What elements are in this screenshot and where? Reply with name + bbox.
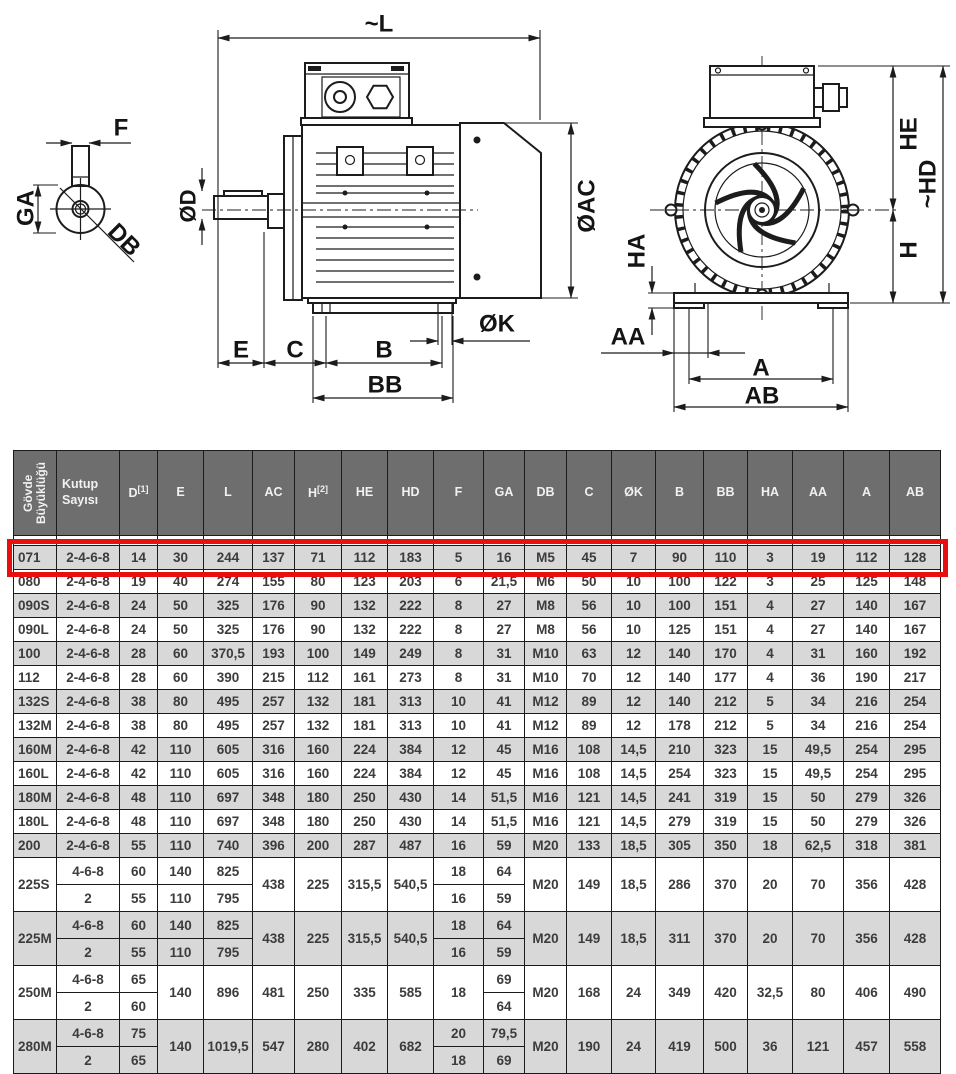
table-cell: 558 <box>890 1020 941 1074</box>
spacer-cell <box>14 536 57 546</box>
table-cell: 112 <box>295 666 342 690</box>
table-cell: 90 <box>295 618 342 642</box>
table-cell: 110 <box>704 546 748 570</box>
table-cell: 100 <box>656 570 704 594</box>
table-cell: 55 <box>120 885 158 912</box>
spacer-cell <box>253 536 295 546</box>
table-cell: 4 <box>748 618 793 642</box>
table-cell: 5 <box>748 690 793 714</box>
table-cell: 605 <box>204 762 253 786</box>
dim-label-ok: ØK <box>479 311 516 338</box>
table-cell: 51,5 <box>484 810 525 834</box>
table-cell: 326 <box>890 786 941 810</box>
spacer-cell <box>844 536 890 546</box>
table-cell: 279 <box>656 810 704 834</box>
col-header-label: GA <box>495 485 514 499</box>
table-cell: 21,5 <box>484 570 525 594</box>
table-cell: 896 <box>204 966 253 1020</box>
table-row: 132S2-4-6-838804952571321813131041M12891… <box>14 690 941 714</box>
table-cell: 132M <box>14 714 57 738</box>
table-cell: 215 <box>253 666 295 690</box>
table-cell: 110 <box>158 762 204 786</box>
table-cell: 122 <box>704 570 748 594</box>
table-cell: 370,5 <box>204 642 253 666</box>
table-cell: 132 <box>295 714 342 738</box>
technical-drawing: F GA DB ~L <box>0 0 956 448</box>
table-row: 2002-4-6-8551107403962002874871659M20133… <box>14 834 941 858</box>
table-cell: 241 <box>656 786 704 810</box>
highlighted-row: 0712-4-6-8143024413771112183516M54579011… <box>14 546 941 570</box>
table-cell: 280M <box>14 1020 57 1074</box>
col-header: HD <box>388 451 434 536</box>
dimension-table-wrapper: Gövde BüyüklüğüKutup SayısıD[1]ELACH[2]H… <box>13 450 956 1074</box>
table-cell: 222 <box>388 618 434 642</box>
table-cell: 090L <box>14 618 57 642</box>
table-cell: 90 <box>656 546 704 570</box>
table-row: 160L2-4-6-8421106053161602243841245M1610… <box>14 762 941 786</box>
col-header-label: D <box>128 486 137 500</box>
dim-label-oac: ØAC <box>574 179 601 232</box>
table-cell: 10 <box>434 714 484 738</box>
table-cell: 349 <box>656 966 704 1020</box>
spacer-cell <box>57 536 120 546</box>
table-cell: 8 <box>434 666 484 690</box>
footnote-marker: [2] <box>317 484 328 494</box>
table-cell: 38 <box>120 714 158 738</box>
col-header-label: AA <box>809 485 827 499</box>
table-cell: 18 <box>434 912 484 939</box>
table-cell: 250M <box>14 966 57 1020</box>
table-cell: 112 <box>14 666 57 690</box>
table-cell: 224 <box>342 738 388 762</box>
table-cell: 326 <box>890 810 941 834</box>
table-cell: 305 <box>656 834 704 858</box>
table-cell: 178 <box>656 714 704 738</box>
table-cell: 279 <box>844 786 890 810</box>
table-cell: 7 <box>612 546 656 570</box>
table-cell: 110 <box>158 786 204 810</box>
table-cell: 8 <box>434 618 484 642</box>
table-cell: M8 <box>525 594 567 618</box>
table-cell: 325 <box>204 594 253 618</box>
table-cell: 244 <box>204 546 253 570</box>
table-cell: 8 <box>434 594 484 618</box>
col-header-label: C <box>584 485 593 499</box>
table-cell: 295 <box>890 762 941 786</box>
col-header: H[2] <box>295 451 342 536</box>
col-header-label: E <box>176 485 184 499</box>
table-cell: 45 <box>484 762 525 786</box>
table-cell: 16 <box>434 939 484 966</box>
dim-label-f: F <box>114 115 129 142</box>
table-cell: 257 <box>253 690 295 714</box>
table-cell: 176 <box>253 618 295 642</box>
table-cell: M12 <box>525 690 567 714</box>
col-header: A <box>844 451 890 536</box>
dim-label-b: B <box>375 337 392 364</box>
table-cell: 540,5 <box>388 858 434 912</box>
table-cell: 313 <box>388 690 434 714</box>
table-cell: 65 <box>120 1047 158 1074</box>
table-cell: 62,5 <box>793 834 844 858</box>
table-cell: 100 <box>656 594 704 618</box>
spacer-cell <box>612 536 656 546</box>
table-cell: 200 <box>14 834 57 858</box>
table-cell: 428 <box>890 912 941 966</box>
table-cell: M20 <box>525 1020 567 1074</box>
spacer-cell <box>342 536 388 546</box>
table-cell: 15 <box>748 786 793 810</box>
table-cell: 10 <box>612 618 656 642</box>
col-header-label: HA <box>761 485 779 499</box>
table-cell: 137 <box>253 546 295 570</box>
table-cell: 160 <box>844 642 890 666</box>
table-cell: 316 <box>253 738 295 762</box>
table-cell: 70 <box>793 858 844 912</box>
table-cell: 59 <box>484 939 525 966</box>
table-cell: 80 <box>793 966 844 1020</box>
table-cell: 60 <box>120 993 158 1020</box>
col-header-label: B <box>675 485 684 499</box>
table-cell: 34 <box>793 714 844 738</box>
table-cell: 438 <box>253 858 295 912</box>
table-cell: 319 <box>704 810 748 834</box>
table-cell: 390 <box>204 666 253 690</box>
table-cell: 36 <box>793 666 844 690</box>
table-cell: 315,5 <box>342 858 388 912</box>
table-cell: 1019,5 <box>204 1020 253 1074</box>
table-cell: 14 <box>434 810 484 834</box>
front-view: HE H ~HD HA AA A AB <box>601 56 950 412</box>
table-cell: 50 <box>567 570 612 594</box>
table-cell: 280 <box>295 1020 342 1074</box>
table-cell: 4 <box>748 594 793 618</box>
table-cell: 203 <box>388 570 434 594</box>
table-cell: 60 <box>120 912 158 939</box>
table-cell: 160 <box>295 738 342 762</box>
table-cell: 38 <box>120 690 158 714</box>
dim-label-he: HE <box>896 117 923 150</box>
table-cell: 402 <box>342 1020 388 1074</box>
table-cell: 225S <box>14 858 57 912</box>
table-cell: 316 <box>253 762 295 786</box>
table-cell: 110 <box>158 885 204 912</box>
table-cell: 254 <box>656 762 704 786</box>
table-cell: 45 <box>567 546 612 570</box>
table-row: 225S4-6-860140825438225315,5540,51864M20… <box>14 858 941 885</box>
table-cell: 100 <box>14 642 57 666</box>
dim-label-bb: BB <box>368 372 403 399</box>
table-cell: 12 <box>612 642 656 666</box>
table-cell: 80 <box>295 570 342 594</box>
table-cell: 168 <box>567 966 612 1020</box>
dim-label-a: A <box>752 355 769 382</box>
dim-label-e: E <box>233 337 249 364</box>
table-cell: 108 <box>567 762 612 786</box>
table-cell: 14 <box>120 546 158 570</box>
table-row: 1122-4-6-82860390215112161273831M1070121… <box>14 666 941 690</box>
table-cell: 16 <box>434 834 484 858</box>
table-cell: 183 <box>388 546 434 570</box>
table-cell: 190 <box>844 666 890 690</box>
table-cell: 2-4-6-8 <box>57 594 120 618</box>
table-cell: 250 <box>342 810 388 834</box>
table-cell: 42 <box>120 738 158 762</box>
table-cell: 12 <box>612 714 656 738</box>
dim-label-db: DB <box>102 218 146 262</box>
table-cell: 225 <box>295 858 342 912</box>
table-cell: 12 <box>612 690 656 714</box>
table-cell: 795 <box>204 939 253 966</box>
table-cell: 112 <box>342 546 388 570</box>
table-cell: 190 <box>567 1020 612 1074</box>
table-cell: 193 <box>253 642 295 666</box>
table-cell: 406 <box>844 966 890 1020</box>
table-cell: 795 <box>204 885 253 912</box>
table-cell: 140 <box>844 618 890 642</box>
dim-label-c: C <box>286 337 303 364</box>
dim-label-od: ØD <box>176 190 201 223</box>
table-cell: 16 <box>484 546 525 570</box>
dim-label-l: ~L <box>365 11 394 38</box>
table-cell: 5 <box>434 546 484 570</box>
col-header: AA <box>793 451 844 536</box>
table-cell: 18,5 <box>612 912 656 966</box>
table-cell: 682 <box>388 1020 434 1074</box>
table-cell: 160 <box>295 762 342 786</box>
table-cell: 430 <box>388 786 434 810</box>
spacer-cell <box>204 536 253 546</box>
table-cell: 180L <box>14 810 57 834</box>
table-cell: 133 <box>567 834 612 858</box>
col-header: AB <box>890 451 941 536</box>
table-cell: 27 <box>484 618 525 642</box>
table-cell: 18 <box>434 858 484 885</box>
table-cell: 170 <box>704 642 748 666</box>
table-cell: 24 <box>612 1020 656 1074</box>
col-header: F <box>434 451 484 536</box>
table-cell: 48 <box>120 786 158 810</box>
dim-label-ha: HA <box>624 234 651 269</box>
table-cell: 540,5 <box>388 912 434 966</box>
table-cell: 140 <box>656 690 704 714</box>
col-header-label: Kutup Sayısı <box>62 477 98 507</box>
dim-label-aa: AA <box>611 324 646 351</box>
table-cell: 69 <box>484 966 525 993</box>
dimension-table: Gövde BüyüklüğüKutup SayısıD[1]ELACH[2]H… <box>13 450 941 1074</box>
table-cell: 121 <box>567 810 612 834</box>
table-cell: 167 <box>890 594 941 618</box>
table-cell: 15 <box>748 810 793 834</box>
col-header: C <box>567 451 612 536</box>
table-cell: 2 <box>57 1047 120 1074</box>
table-row: 132M2-4-6-838804952571321813131041M12891… <box>14 714 941 738</box>
table-cell: 42 <box>120 762 158 786</box>
table-cell: 24 <box>612 966 656 1020</box>
table-cell: 254 <box>890 690 941 714</box>
table-cell: 250 <box>295 966 342 1020</box>
table-cell: 132 <box>342 594 388 618</box>
table-cell: 125 <box>844 570 890 594</box>
table-cell: 4-6-8 <box>57 1020 120 1047</box>
col-header-label: AC <box>264 485 282 499</box>
spacer-cell <box>295 536 342 546</box>
table-row: 160M2-4-6-8421106053161602243841245M1610… <box>14 738 941 762</box>
table-cell: 45 <box>484 738 525 762</box>
table-cell: 180 <box>295 786 342 810</box>
table-cell: 12 <box>612 666 656 690</box>
table-cell: 140 <box>158 858 204 885</box>
table-cell: 108 <box>567 738 612 762</box>
table-cell: 348 <box>253 810 295 834</box>
table-cell: 420 <box>704 966 748 1020</box>
table-cell: 10 <box>612 570 656 594</box>
table-cell: 2-4-6-8 <box>57 570 120 594</box>
shaft-end-view: F GA DB <box>13 115 146 263</box>
table-cell: 110 <box>158 939 204 966</box>
table-cell: M20 <box>525 912 567 966</box>
table-cell: 80 <box>158 690 204 714</box>
col-header: HE <box>342 451 388 536</box>
table-cell: 273 <box>388 666 434 690</box>
table-cell: 140 <box>158 912 204 939</box>
table-row: 0802-4-6-8194027415580123203621,5M650101… <box>14 570 941 594</box>
col-header: AC <box>253 451 295 536</box>
table-cell: 384 <box>388 738 434 762</box>
table-cell: 225M <box>14 912 57 966</box>
col-header: D[1] <box>120 451 158 536</box>
table-cell: M16 <box>525 762 567 786</box>
col-header: BB <box>704 451 748 536</box>
table-cell: 2-4-6-8 <box>57 618 120 642</box>
table-cell: 14,5 <box>612 762 656 786</box>
table-cell: 160M <box>14 738 57 762</box>
dim-label-hd: ~HD <box>915 160 942 209</box>
spacer-cell <box>434 536 484 546</box>
table-cell: 254 <box>890 714 941 738</box>
table-cell: 487 <box>388 834 434 858</box>
col-header: ØK <box>612 451 656 536</box>
table-cell: 2-4-6-8 <box>57 642 120 666</box>
col-header-label: HE <box>356 485 373 499</box>
table-cell: 132 <box>295 690 342 714</box>
table-cell: 217 <box>890 666 941 690</box>
table-cell: 20 <box>748 912 793 966</box>
table-cell: 79,5 <box>484 1020 525 1047</box>
table-cell: 128 <box>890 546 941 570</box>
table-cell: 180M <box>14 786 57 810</box>
table-cell: 2-4-6-8 <box>57 834 120 858</box>
table-cell: 225 <box>295 912 342 966</box>
table-cell: 132 <box>342 618 388 642</box>
table-cell: 24 <box>120 594 158 618</box>
table-cell: 457 <box>844 1020 890 1074</box>
table-cell: 318 <box>844 834 890 858</box>
table-cell: 4-6-8 <box>57 858 120 885</box>
table-cell: 2-4-6-8 <box>57 546 120 570</box>
table-cell: 24 <box>120 618 158 642</box>
table-cell: 605 <box>204 738 253 762</box>
table-cell: 323 <box>704 762 748 786</box>
table-cell: 64 <box>484 993 525 1020</box>
table-cell: 151 <box>704 618 748 642</box>
col-header-label: DB <box>536 485 554 499</box>
table-cell: 381 <box>890 834 941 858</box>
table-cell: 356 <box>844 912 890 966</box>
table-cell: 151 <box>704 594 748 618</box>
table-cell: 224 <box>342 762 388 786</box>
table-cell: 180 <box>295 810 342 834</box>
table-cell: 65 <box>120 966 158 993</box>
spacer-cell <box>484 536 525 546</box>
table-cell: 697 <box>204 786 253 810</box>
table-cell: 50 <box>793 786 844 810</box>
table-cell: 495 <box>204 714 253 738</box>
table-cell: 64 <box>484 912 525 939</box>
table-cell: 396 <box>253 834 295 858</box>
table-cell: 5 <box>748 714 793 738</box>
spacer-cell <box>656 536 704 546</box>
table-cell: 55 <box>120 939 158 966</box>
table-cell: 148 <box>890 570 941 594</box>
table-cell: 500 <box>704 1020 748 1074</box>
table-cell: 274 <box>204 570 253 594</box>
table-cell: 18,5 <box>612 858 656 912</box>
table-cell: 32,5 <box>748 966 793 1020</box>
table-cell: 90 <box>295 594 342 618</box>
table-cell: 110 <box>158 810 204 834</box>
footnote-marker: [1] <box>138 484 149 494</box>
table-cell: 249 <box>388 642 434 666</box>
table-cell: 287 <box>342 834 388 858</box>
table-cell: 56 <box>567 594 612 618</box>
table-cell: M16 <box>525 738 567 762</box>
table-cell: 60 <box>158 666 204 690</box>
table-cell: 41 <box>484 690 525 714</box>
table-cell: 286 <box>656 858 704 912</box>
table-cell: 121 <box>567 786 612 810</box>
table-cell: 20 <box>434 1020 484 1047</box>
table-cell: 19 <box>120 570 158 594</box>
table-cell: 27 <box>793 594 844 618</box>
table-cell: 110 <box>158 834 204 858</box>
table-row: 1002-4-6-82860370,5193100149249831M10631… <box>14 642 941 666</box>
table-cell: 279 <box>844 810 890 834</box>
table-cell: M10 <box>525 642 567 666</box>
table-cell: 370 <box>704 858 748 912</box>
table-cell: 2-4-6-8 <box>57 690 120 714</box>
table-cell: 70 <box>567 666 612 690</box>
table-cell: 59 <box>484 885 525 912</box>
spacer-cell <box>158 536 204 546</box>
table-cell: 3 <box>748 570 793 594</box>
table-cell: 825 <box>204 912 253 939</box>
table-cell: 167 <box>890 618 941 642</box>
table-cell: 428 <box>890 858 941 912</box>
table-cell: 155 <box>253 570 295 594</box>
table-cell: 295 <box>890 738 941 762</box>
table-cell: 60 <box>158 642 204 666</box>
col-header: Gövde Büyüklüğü <box>14 451 57 536</box>
table-cell: 2-4-6-8 <box>57 810 120 834</box>
table-cell: 140 <box>158 1020 204 1074</box>
table-cell: 123 <box>342 570 388 594</box>
spacer-cell <box>120 536 158 546</box>
table-cell: 28 <box>120 666 158 690</box>
col-header-label: A <box>862 485 871 499</box>
table-cell: 200 <box>295 834 342 858</box>
col-header-label: ØK <box>624 485 643 499</box>
